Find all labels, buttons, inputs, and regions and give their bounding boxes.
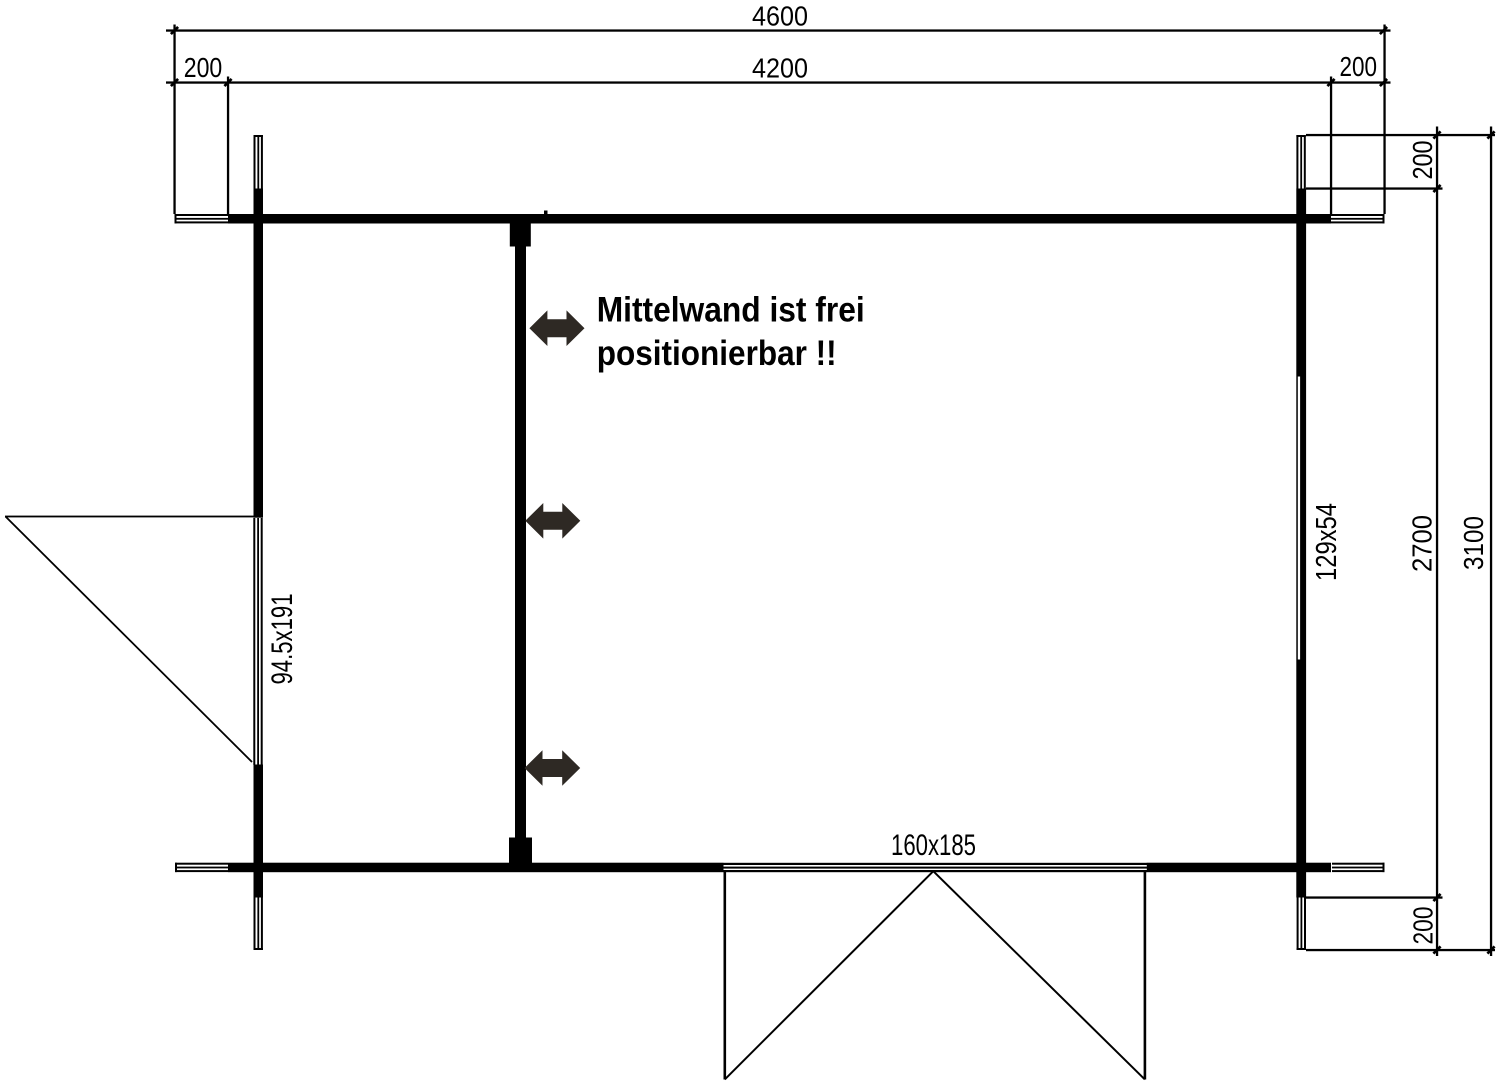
svg-text:200: 200 bbox=[184, 52, 223, 83]
svg-text:2700: 2700 bbox=[1407, 515, 1438, 572]
svg-text:positionierbar !!: positionierbar !! bbox=[597, 334, 837, 373]
svg-text:4600: 4600 bbox=[752, 1, 808, 32]
svg-text:94.5x191: 94.5x191 bbox=[266, 594, 299, 685]
svg-text:3100: 3100 bbox=[1458, 516, 1489, 570]
svg-text:160x185: 160x185 bbox=[891, 829, 976, 862]
svg-text:200: 200 bbox=[1340, 51, 1378, 82]
svg-text:Mittelwand ist frei: Mittelwand ist frei bbox=[597, 291, 865, 330]
svg-text:129x54: 129x54 bbox=[1311, 503, 1343, 581]
svg-text:4200: 4200 bbox=[752, 53, 808, 84]
svg-text:200: 200 bbox=[1407, 141, 1438, 180]
svg-text:200: 200 bbox=[1408, 907, 1439, 945]
